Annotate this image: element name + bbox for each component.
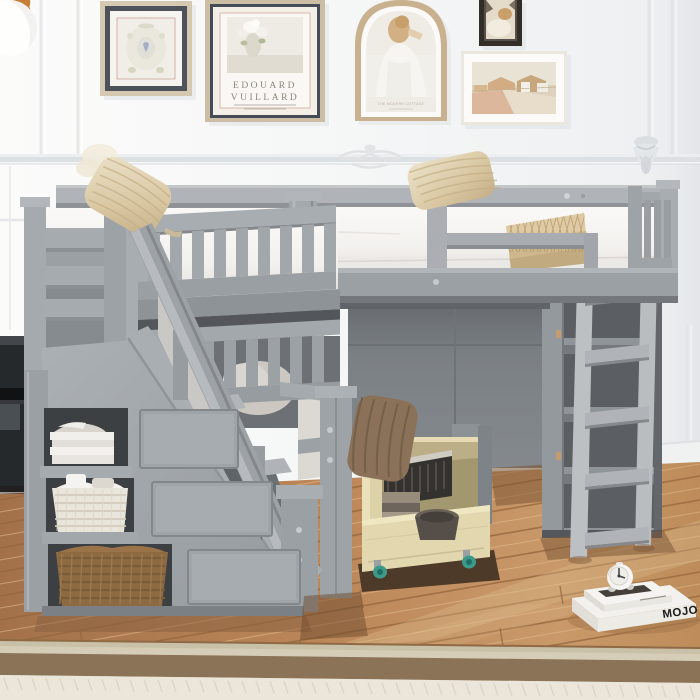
svg-text:THE MODERN COTTAGE: THE MODERN COTTAGE bbox=[378, 102, 424, 106]
svg-text:VUILLARD: VUILLARD bbox=[231, 93, 300, 103]
svg-text:EDOUARD: EDOUARD bbox=[233, 81, 297, 91]
